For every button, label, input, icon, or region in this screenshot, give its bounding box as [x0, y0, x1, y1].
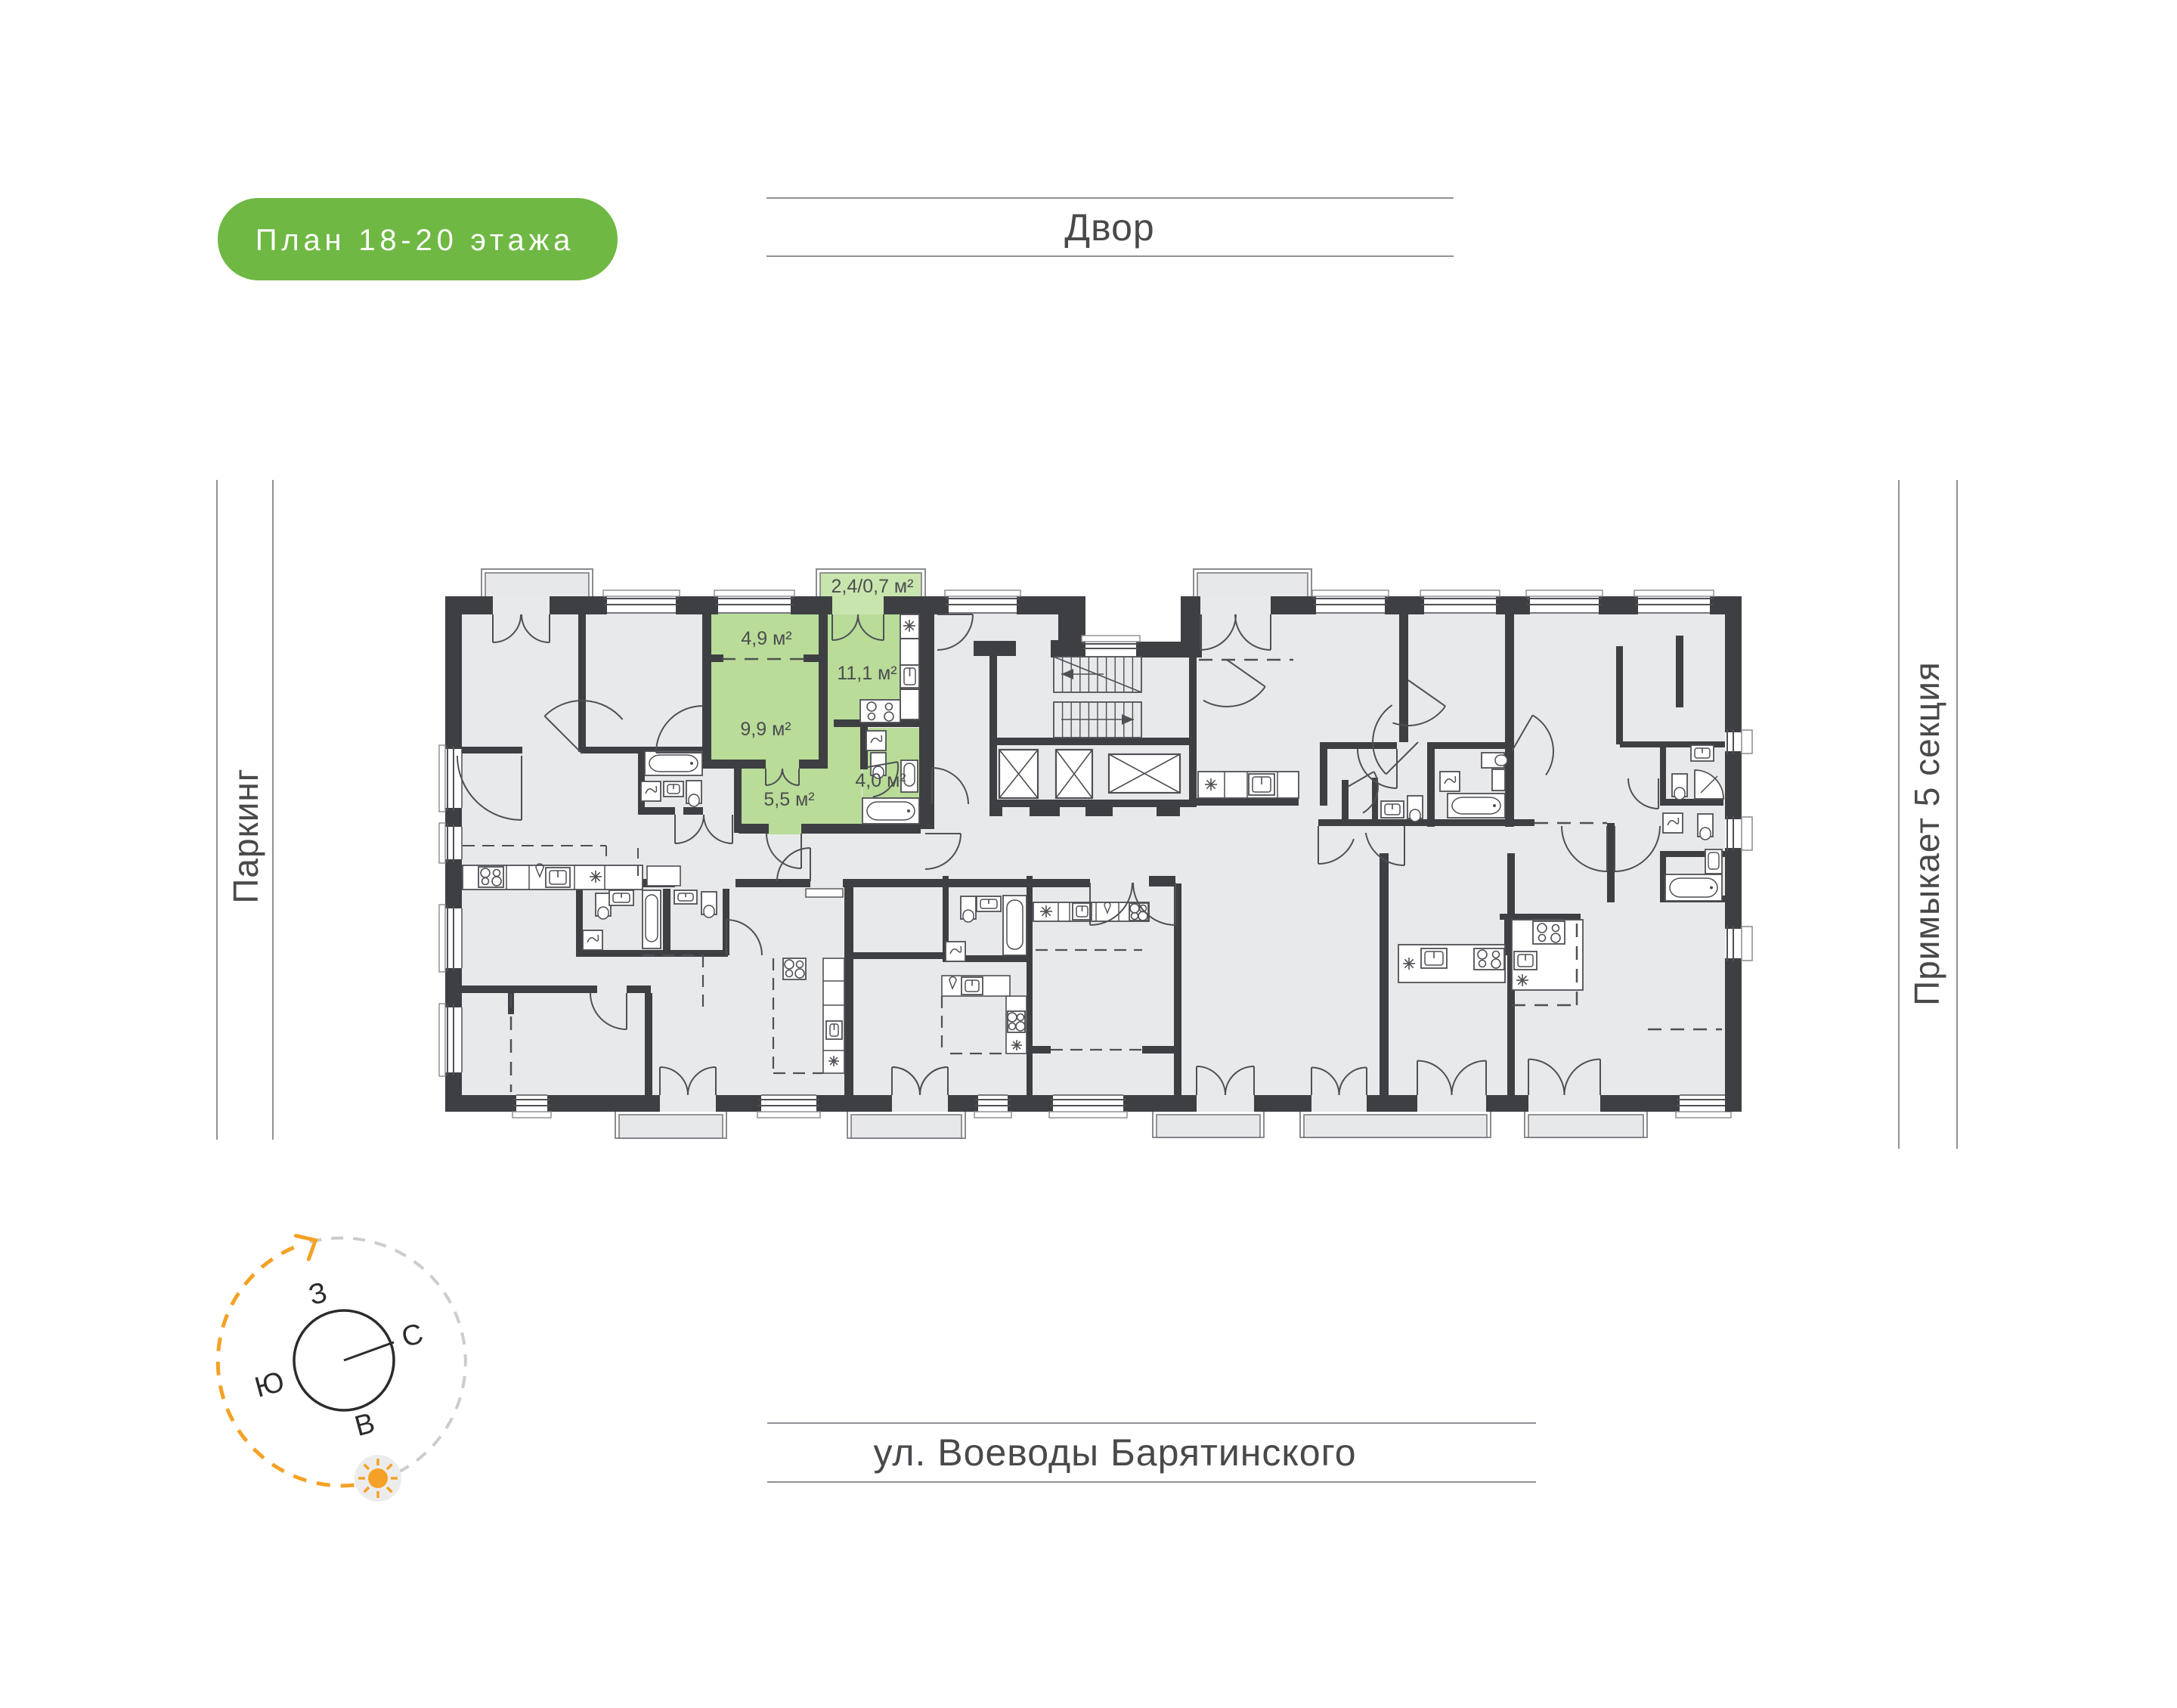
svg-text:Примыкает 5 секция: Примыкает 5 секция — [1907, 661, 1946, 1006]
svg-text:Ю: Ю — [252, 1366, 288, 1404]
svg-text:Двор: Двор — [1064, 206, 1154, 249]
svg-text:Паркинг: Паркинг — [226, 768, 265, 903]
svg-text:5,5 м²: 5,5 м² — [763, 789, 814, 810]
svg-text:9,9 м²: 9,9 м² — [740, 719, 791, 740]
svg-text:4,9 м²: 4,9 м² — [741, 628, 791, 649]
svg-text:11,1 м²: 11,1 м² — [837, 663, 897, 684]
svg-text:ул. Воеводы Барятинского: ул. Воеводы Барятинского — [873, 1431, 1356, 1474]
svg-text:В: В — [351, 1407, 379, 1443]
svg-text:План 18-20 этажа: План 18-20 этажа — [255, 224, 574, 257]
svg-text:С: С — [398, 1318, 427, 1354]
svg-text:2,4/0,7 м²: 2,4/0,7 м² — [831, 576, 914, 597]
svg-text:4,0 м²: 4,0 м² — [855, 770, 906, 791]
svg-text:З: З — [305, 1276, 331, 1312]
